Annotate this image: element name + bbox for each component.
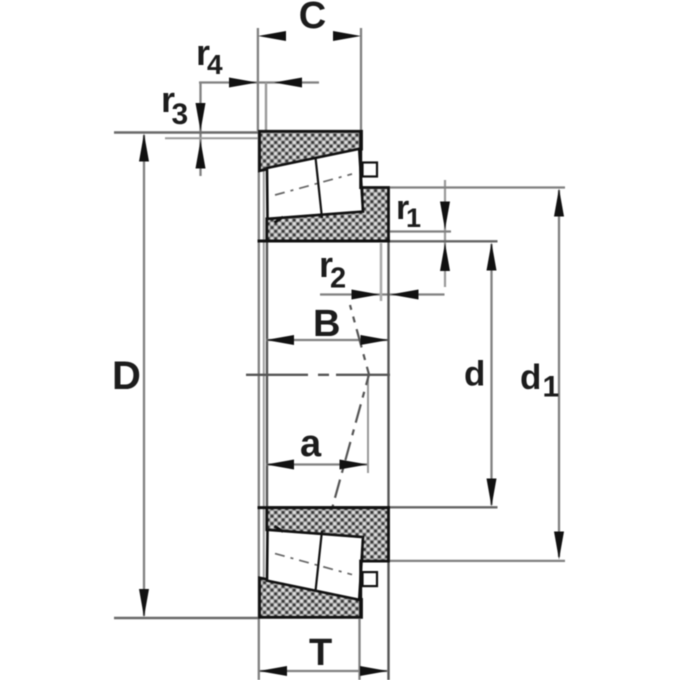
svg-text:C: C (299, 0, 326, 37)
svg-text:d: d (464, 355, 485, 394)
svg-text:D: D (112, 354, 141, 398)
svg-text:3: 3 (172, 98, 189, 131)
svg-text:2: 2 (330, 263, 346, 295)
svg-text:1: 1 (406, 203, 421, 233)
svg-text:1: 1 (543, 371, 560, 404)
svg-text:4: 4 (207, 49, 223, 80)
svg-text:B: B (313, 303, 340, 345)
svg-text:d: d (520, 358, 541, 397)
svg-text:a: a (300, 423, 322, 465)
svg-text:T: T (309, 632, 332, 674)
